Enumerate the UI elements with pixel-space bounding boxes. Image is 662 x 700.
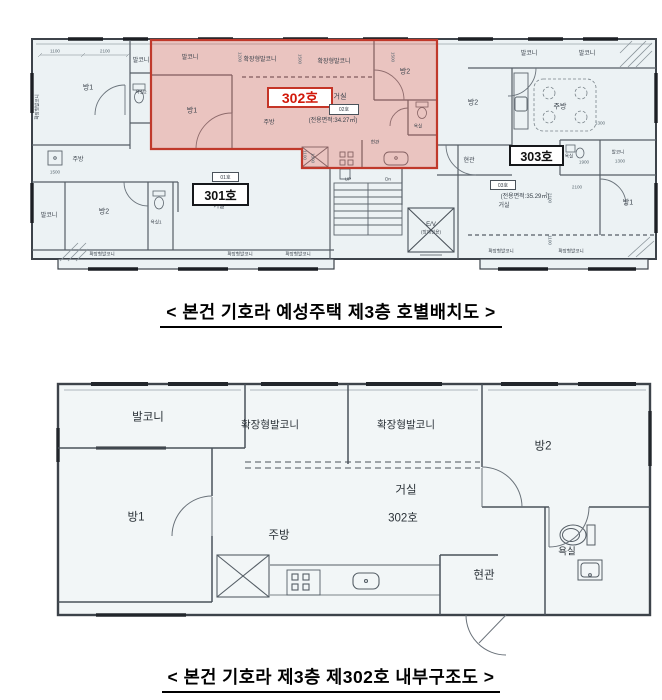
room-label-ext-balcony: 확장형발코니 [317,59,350,65]
room-label-ext-balcony: 확장형발코니 [227,253,252,258]
room-label-room1: 방1 [83,85,93,92]
room-label-ext-balcony: 확장형발코니 [241,420,299,431]
caption-interior-structure-text: < 본건 기호라 제3층 제302호 내부구조도 > [162,664,501,693]
stairs-up-label: UP [345,178,351,183]
room-label-room2: 방2 [400,69,410,76]
dim-label: 1100 [547,235,552,245]
room-label-ext-balcony: 확장형발코니 [285,253,310,258]
room-label-ext-balcony: 확장형발코니 [377,420,435,431]
dim-label: 1200 [237,52,242,62]
room-label-living: 거실 [395,485,416,497]
room-label-ext-balcony: 확장형발코니 [89,253,114,258]
room-label-bath2: 욕실2 [135,91,146,96]
room-label-balcony: 발코니 [182,55,199,61]
room-label-balcony: 발코니 [579,51,596,57]
unit-301-badge: 301호 [192,183,249,206]
dim-label: 1300 [595,122,605,127]
unit-302-tag: 02호 [329,104,359,115]
unit-302-badge: 302호 [267,87,333,108]
dim-label: 2100 [100,50,110,55]
dim-label: 1300 [310,153,315,163]
room-label-ext-balcony: 확장형발코니 [36,94,41,119]
room-label-balcony: 발코니 [612,151,625,156]
room-label-room1: 방1 [187,108,197,115]
elevator-label: E/V [426,222,436,228]
room-label-kitchen: 주방 [268,530,289,542]
room-label-balcony: 발코니 [41,213,58,219]
dim-label: 1100 [50,50,60,55]
floor-plan-building-layout: 1100 2100 확장형발코니 발코니 방1 욕실2 주방 1500 발코니 … [28,33,658,278]
floor-plan-unit-302-interior: 발코니 확장형발코니 확장형발코니 방2 거실 302호 방1 주방 욕실 현관 [36,376,652,666]
dim-label: 1500 [50,171,60,176]
room-label-ext-balcony: 확장형발코니 [558,250,583,255]
room-label-room1: 방1 [128,512,145,524]
room-label-entrance: 현관 [473,570,494,582]
room-label-room2: 방2 [535,441,552,453]
dim-label: 1900 [579,161,589,166]
unit-303-area-text: (전용면적:35.29㎡) [501,194,550,200]
room-label-entrance: 현관 [463,158,474,164]
room-label-bath: 욕실 [565,155,573,160]
unit-302-room-number: 302호 [388,513,418,525]
unit-301-tag: 01호 [212,172,239,182]
caption-floor-layout: < 본건 기호라 예성주택 제3층 호별배치도 > [0,299,662,328]
dim-label: 1500 [297,54,302,64]
unit-303-badge: 303호 [509,145,564,166]
stairs-down-label: Dn [385,178,391,183]
room-label-room2: 방2 [468,100,478,107]
room-label-kitchen: 주방 [263,120,274,126]
room-label-balcony: 발코니 [133,58,150,64]
room-label-kitchen: 주방 [72,157,83,163]
room-label-balcony: 발코니 [132,412,164,424]
dim-label: 1300 [615,160,625,165]
unit-303-tag: 03호 [490,180,516,190]
room-label-bath1: 욕실1 [150,221,161,226]
room-label-kitchen: 주방 [554,104,567,111]
room-label-bath: 욕실 [414,125,422,130]
caption-floor-layout-text: < 본건 기호라 예성주택 제3층 호별배치도 > [160,299,501,328]
room-label-room2: 방2 [99,209,109,216]
room-label-living: 거실 [334,94,347,101]
dim-label: 1500 [390,52,395,62]
elevator-note-label: (장애인용) [421,231,441,236]
caption-interior-structure: < 본건 기호라 제3층 제302호 내부구조도 > [0,664,662,693]
room-label-entrance: 현관 [371,141,379,146]
scanned-document-page: 1100 2100 확장형발코니 발코니 방1 욕실2 주방 1500 발코니 … [0,0,662,700]
room-label-bath: 욕실 [558,547,575,557]
dim-label: 1100 [302,150,307,160]
room-label-living: 거실 [498,203,509,209]
unit-302-area-text: (전용면적:34.27㎡) [309,118,358,124]
room-label-ext-balcony: 확장형발코니 [243,57,276,63]
room-label-balcony: 발코니 [521,51,538,57]
room-label-room1: 방1 [623,200,633,207]
dim-label: 2100 [572,186,582,191]
room-label-ext-balcony: 확장형발코니 [488,250,513,255]
